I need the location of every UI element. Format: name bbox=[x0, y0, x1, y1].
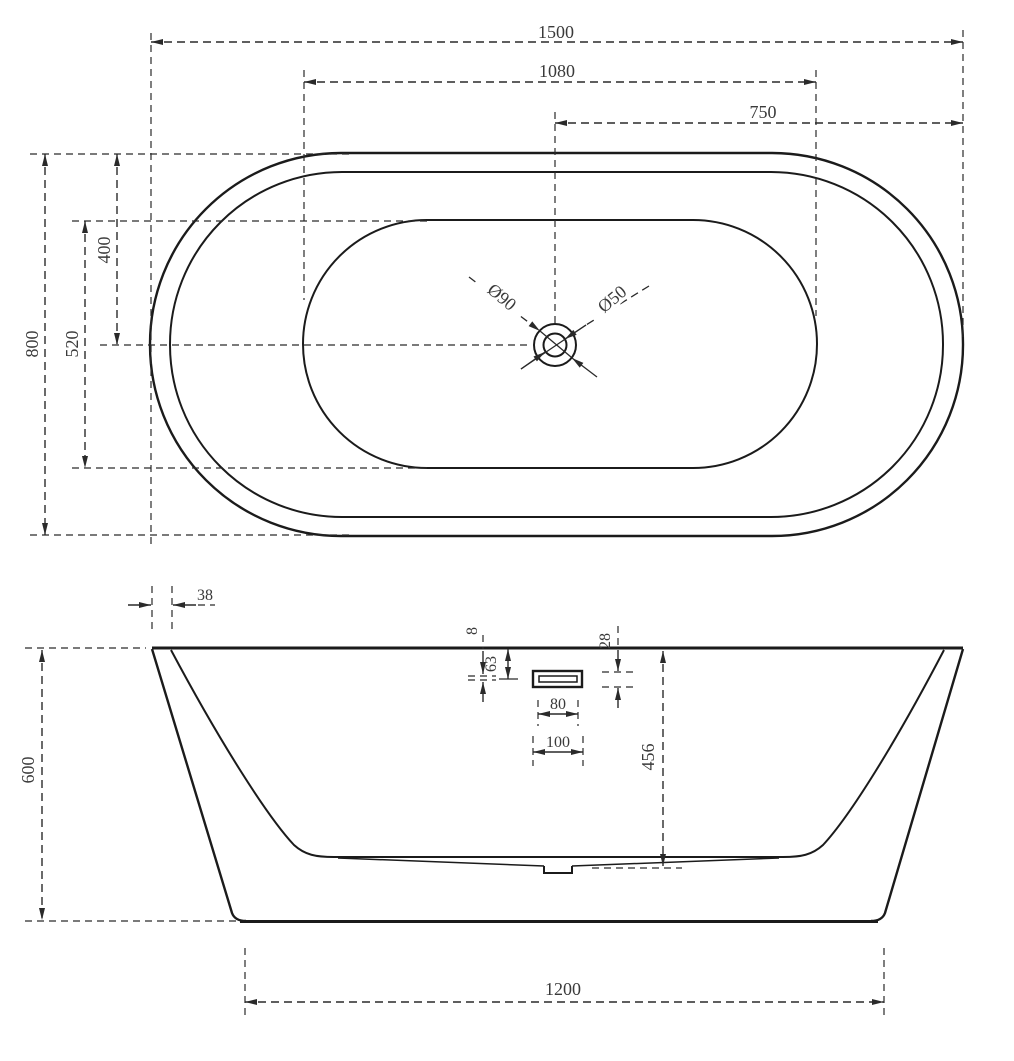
dim-label-overflow-slot-height: 8 bbox=[464, 627, 481, 635]
tub-outline-front bbox=[152, 648, 963, 922]
dim-center-to-side: 400 bbox=[94, 154, 117, 345]
dim-rim-thickness: 38 bbox=[128, 586, 215, 629]
dim-label-inner-depth: 456 bbox=[638, 744, 658, 771]
dim-label-base-length: 1200 bbox=[545, 979, 581, 999]
drawing-canvas: 1500 1080 750 800 520 400 bbox=[0, 0, 1014, 1061]
dim-overflow-bezel-height: 28 bbox=[597, 626, 634, 708]
dim-label-overflow-bezel-height: 28 bbox=[597, 633, 614, 649]
dim-overflow-slot-width: 80 bbox=[538, 696, 578, 726]
outer-wall-right bbox=[871, 649, 963, 921]
floor-slope-left bbox=[338, 858, 544, 866]
dim-label-overflow-bezel-width: 100 bbox=[546, 734, 570, 751]
dim-overall-width: 800 bbox=[22, 154, 45, 535]
front-view: 38 600 8 63 28 bbox=[18, 586, 963, 1016]
floor-slope-right bbox=[572, 858, 779, 866]
basin-oval bbox=[303, 220, 817, 468]
dim-basin-width: 520 bbox=[62, 221, 85, 468]
overflow-slot bbox=[539, 676, 577, 682]
dim-label-center-to-end: 750 bbox=[750, 102, 777, 122]
drain-notch bbox=[544, 866, 572, 873]
dim-overflow-top-offset: 63 bbox=[483, 649, 518, 679]
dim-label-basin-width: 520 bbox=[62, 331, 82, 358]
dim-label-overall-height: 600 bbox=[18, 757, 38, 784]
dim-label-overall-length: 1500 bbox=[538, 22, 574, 42]
outer-wall-left bbox=[152, 649, 246, 921]
dim-label-center-to-side: 400 bbox=[94, 237, 114, 264]
dim-center-to-end: 750 bbox=[555, 102, 963, 123]
overflow-bezel bbox=[533, 671, 582, 687]
dim-label-overflow-top-offset: 63 bbox=[483, 656, 500, 672]
drain-outer-circle bbox=[534, 324, 576, 366]
leader-arrow bbox=[572, 358, 597, 377]
dim-overflow-bezel-width: 100 bbox=[533, 734, 583, 766]
inner-wall-left bbox=[171, 650, 334, 857]
dim-inner-depth: 456 bbox=[592, 651, 682, 868]
inner-wall-right bbox=[783, 650, 944, 857]
top-view: 1500 1080 750 800 520 400 bbox=[22, 22, 963, 549]
dim-overall-length: 1500 bbox=[151, 22, 963, 42]
dim-label-basin-length: 1080 bbox=[539, 61, 575, 81]
dim-overall-height: 600 bbox=[18, 648, 236, 921]
dim-base-length: 1200 bbox=[245, 948, 884, 1016]
dim-basin-length: 1080 bbox=[304, 61, 816, 82]
centerlines-top bbox=[100, 112, 555, 345]
dim-label-rim-thickness: 38 bbox=[197, 587, 213, 604]
dim-label-overflow-slot-width: 80 bbox=[550, 696, 566, 713]
bathtub-technical-drawing: 1500 1080 750 800 520 400 bbox=[0, 0, 1014, 1061]
leader-arrow bbox=[565, 325, 586, 339]
dim-label-overall-width: 800 bbox=[22, 331, 42, 358]
